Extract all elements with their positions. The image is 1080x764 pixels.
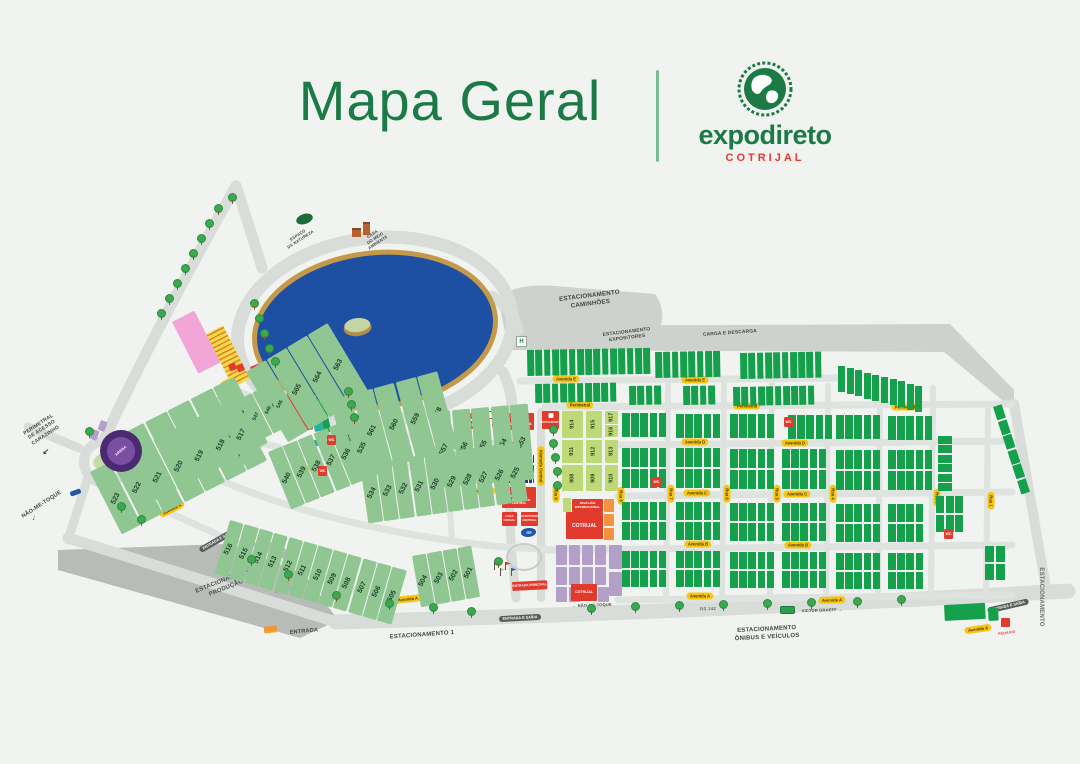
tree-icon: [549, 439, 558, 448]
stand-cell: [873, 504, 881, 522]
stand-cell: [713, 551, 721, 568]
stand-cell: [819, 449, 827, 468]
lot-number: 528: [462, 472, 474, 486]
stand-cell: [640, 570, 648, 587]
stand-cell: [916, 524, 924, 542]
tree-icon: [347, 400, 356, 409]
stand-cell: [925, 450, 933, 469]
map-label: RS 142: [700, 606, 716, 612]
stand-cell: [758, 414, 766, 438]
stand-cell: [758, 386, 765, 405]
stand-cell: [739, 503, 747, 521]
building-label: LOJA OFICIAL: [504, 515, 516, 522]
stand-cell: [758, 571, 766, 588]
map-feature-std: [944, 603, 986, 621]
stand-cell: [906, 450, 914, 469]
stand-cell: [750, 387, 757, 406]
building-label: AUDITÓRIO CENTRAL: [521, 515, 538, 522]
stand-cell: [897, 416, 905, 440]
lot-number: 913: [608, 447, 615, 456]
stand-cell: [864, 504, 872, 522]
building-auditório: AUDITÓRIO CENTRAL: [521, 512, 538, 526]
stand-cell: [631, 522, 639, 540]
lot-number: 563: [333, 357, 345, 371]
avenue-pill-perimetral: Perimetral: [566, 402, 593, 409]
lot-number: 537: [326, 453, 338, 467]
stand-cell: [845, 504, 853, 522]
stand-cell: [739, 470, 747, 489]
stand-cell: [938, 483, 952, 491]
stand-cell: [694, 570, 702, 587]
tree-icon: [429, 603, 438, 612]
stand-cell: [685, 522, 693, 540]
lot-913: 913: [605, 440, 618, 463]
flag-pole: [511, 568, 512, 576]
stand-cell: [640, 469, 648, 488]
stand-cell: [906, 416, 914, 440]
avenue-pill-avenida-a: Avenida A: [818, 596, 845, 604]
stand-cell: [916, 572, 924, 589]
lot-number: 527: [478, 470, 490, 484]
stand-cell: [676, 414, 684, 438]
stand-cell: [955, 515, 963, 532]
stand-cell: [791, 503, 799, 521]
environment-house-icon: [352, 228, 361, 237]
lot-number: 536: [341, 447, 353, 461]
map-label: ↙: [43, 447, 50, 457]
stand-cell: [758, 503, 766, 521]
stand-cell: [767, 449, 775, 468]
lot-number: 513: [268, 555, 280, 569]
stand-cell: [907, 384, 914, 410]
avenue-pill-rua-5: Rua 5: [774, 485, 781, 503]
stand-cell: [730, 470, 738, 489]
stand-cell: [676, 448, 684, 467]
stand-cell: [631, 570, 639, 587]
stand-cell: [650, 570, 658, 587]
lot-number: 546: [263, 405, 272, 415]
stand-cell: [610, 348, 617, 374]
map-feature-pur: [556, 567, 567, 585]
tree-icon: [553, 467, 562, 476]
stand-cell: [631, 448, 639, 467]
stand-cell: [888, 416, 896, 440]
stand-cell: [758, 470, 766, 489]
stand-cell: [640, 413, 648, 437]
map-feature-org: [604, 528, 614, 540]
stand-cell: [748, 523, 756, 541]
stand-cell: [655, 352, 662, 378]
stand-cell: [897, 471, 905, 490]
lot-number: 910: [608, 473, 615, 482]
map-feature-pur: [569, 545, 580, 565]
bus-icon: [780, 606, 795, 614]
tree-icon: [117, 502, 126, 511]
stand-cell: [845, 524, 853, 542]
stand-cell: [872, 375, 879, 401]
lot-number: 908: [569, 473, 576, 482]
stand-cell: [791, 571, 799, 588]
stand-cell: [888, 524, 896, 542]
stand-cell: [622, 448, 630, 467]
stand-cell: [713, 448, 721, 467]
stand-cell: [593, 383, 600, 402]
lot-911: 911: [562, 440, 583, 463]
stand-cell: [938, 464, 952, 472]
stand-cell: [704, 551, 712, 568]
stand-cell: [704, 570, 712, 587]
map-feature-std: [988, 607, 999, 621]
tree-icon: [807, 598, 816, 607]
stand-cell: [938, 474, 952, 482]
stand-cell: [898, 381, 905, 407]
stand-cell: [810, 523, 818, 541]
lot-number: 504: [418, 574, 430, 588]
lot-916: 916: [605, 425, 618, 437]
lot-number: 511: [297, 563, 308, 576]
stand-cell: [836, 524, 844, 542]
stand-cell: [825, 415, 833, 439]
stand-cell: [610, 383, 617, 402]
building-loja: LOJA OFICIAL: [502, 512, 517, 526]
stand-cell: [955, 496, 963, 513]
stand-cell: [767, 571, 775, 588]
tree-icon: [137, 515, 146, 524]
stand-cell: [543, 384, 550, 403]
stand-cell: [552, 384, 559, 403]
stand-cell: [631, 413, 639, 437]
lot-number: 559: [410, 412, 422, 426]
flag-pole: [500, 568, 501, 576]
stand-cell: [847, 368, 854, 394]
lot-number: 533: [382, 484, 394, 498]
stand-cell: [650, 502, 658, 520]
tree-icon: [719, 600, 728, 609]
stand-cell: [544, 350, 551, 376]
stand-cell: [906, 553, 914, 570]
stand-cell: [938, 436, 952, 444]
stand-cell: [640, 551, 648, 568]
map-feature-pur: [595, 545, 606, 565]
stand-cell: [739, 414, 747, 438]
stand-cell: [782, 503, 790, 521]
lot-number: 915: [591, 420, 598, 429]
stand-cell: [650, 413, 658, 437]
stand-cell: [766, 386, 773, 405]
stand-cell: [782, 449, 790, 468]
stand-cell: [740, 353, 747, 379]
stand-cell: [836, 572, 844, 589]
lot-number: 507: [357, 580, 369, 594]
stand-cell: [635, 348, 642, 374]
tree-icon: [189, 249, 198, 258]
stand-cell: [767, 470, 775, 489]
stand-cell: [873, 450, 881, 469]
wc-icon: WC: [652, 477, 661, 487]
stand-cell: [685, 469, 693, 488]
stand-cell: [810, 449, 818, 468]
lot-number: 516: [223, 542, 235, 556]
flag: [512, 568, 517, 571]
building-label: ENTRADA PRINCIPAL: [512, 583, 547, 589]
stand-cell: [897, 504, 905, 522]
lot-914: 914: [562, 411, 583, 438]
map-feature-pur: [598, 587, 609, 602]
tree-icon: [587, 604, 596, 613]
stand-cell: [800, 552, 808, 569]
stand-cell: [888, 450, 896, 469]
tree-icon: [549, 425, 558, 434]
stand-cell: [622, 469, 630, 488]
tree-icon: [181, 264, 190, 273]
stand-cell: [640, 448, 648, 467]
stand-cell: [854, 415, 862, 439]
stand-cell: [836, 415, 844, 439]
stand-cell: [838, 366, 845, 392]
stand-cell: [730, 414, 738, 438]
stand-cell: [791, 449, 799, 468]
tree-icon: [228, 193, 237, 202]
tree-icon: [197, 234, 206, 243]
lot-number: 912: [591, 447, 598, 456]
map-feature-pur: [556, 587, 567, 602]
tree-icon: [385, 599, 394, 608]
stand-cell: [897, 524, 905, 542]
tree-icon: [853, 597, 862, 606]
stand-cell: [996, 564, 1005, 580]
stand-cell: [730, 571, 738, 588]
stand-cell: [888, 471, 896, 490]
stand-cell: [855, 370, 862, 396]
stand-cell: [704, 448, 712, 467]
lot-number: 564: [312, 370, 324, 384]
stand-cell: [767, 414, 775, 438]
stand-cell: [864, 415, 872, 439]
stand-cell: [663, 352, 670, 378]
wc-icon: WC: [318, 466, 327, 476]
stand-cell: [888, 553, 896, 570]
stand-cell: [819, 552, 827, 569]
stand-cell: [916, 504, 924, 522]
stand-cell: [713, 570, 721, 587]
stand-cell: [694, 469, 702, 488]
stand-cell: [773, 352, 780, 378]
lot-number: 520: [173, 459, 185, 473]
tree-icon: [897, 595, 906, 604]
stand-cell: [758, 552, 766, 569]
stand-cell: [781, 352, 788, 378]
stand-cell: [757, 353, 764, 379]
stand-cell: [593, 349, 600, 375]
stand-cell: [629, 386, 636, 405]
stand-cell: [791, 386, 798, 405]
stand-cell: [767, 552, 775, 569]
map-feature-pur: [569, 567, 580, 585]
tree-icon: [214, 204, 223, 213]
stand-cell: [739, 449, 747, 468]
lot-number: 529: [446, 475, 458, 489]
tree-icon: [551, 453, 560, 462]
stand-cell: [800, 523, 808, 541]
stand-cell: [659, 522, 667, 540]
lot-912: 912: [586, 440, 602, 463]
stand-cell: [585, 349, 592, 375]
lot-number: 917: [608, 413, 615, 422]
tree-icon: [205, 219, 214, 228]
stand-cell: [791, 470, 799, 489]
stand-cell: [819, 571, 827, 588]
map-feature-pur: [582, 567, 593, 585]
stand-cell: [637, 386, 644, 405]
stand-cell: [782, 470, 790, 489]
stand-cell: [797, 415, 805, 439]
flag: [495, 562, 500, 565]
stand-cell: [730, 503, 738, 521]
stand-cell: [845, 572, 853, 589]
stand-cell: [704, 469, 712, 488]
stand-cell: [685, 570, 693, 587]
stand-cell: [676, 570, 684, 587]
stand-cell: [864, 553, 872, 570]
lot-number: 539: [296, 465, 308, 479]
stand-cell: [622, 502, 630, 520]
stand-cell: [906, 524, 914, 542]
stand-cell: [552, 349, 559, 375]
lot-number: 530: [430, 477, 442, 491]
stand-cell: [741, 387, 748, 406]
avenue-pill-avenida-d: Avenida D: [681, 439, 708, 446]
stand-cell: [650, 522, 658, 540]
stand-cell: [748, 571, 756, 588]
tree-icon: [247, 555, 256, 564]
stand-cell: [897, 572, 905, 589]
lot-915: 915: [586, 411, 602, 438]
stand-cell: [576, 383, 583, 402]
stand-cell: [800, 449, 808, 468]
stand-cell: [659, 551, 667, 568]
stand-cell: [705, 351, 712, 377]
stand-cell: [946, 496, 954, 513]
tree-icon: [157, 309, 166, 318]
avenue-pill-rua-1: Rua 1: [988, 492, 995, 510]
stand-cell: [730, 449, 738, 468]
lot-number: 540: [281, 471, 293, 485]
stand-cell: [631, 469, 639, 488]
lot-number: 545: [276, 399, 285, 409]
stand-cell: [622, 551, 630, 568]
stand-cell: [816, 415, 824, 439]
stand-cell: [854, 471, 862, 490]
stand-cell: [694, 551, 702, 568]
stand-cell: [873, 415, 881, 439]
stand-cell: [685, 448, 693, 467]
stand-cell: [685, 502, 693, 520]
stand-cell: [782, 523, 790, 541]
food-icon: [548, 413, 553, 418]
stand-cell: [881, 377, 888, 403]
lot-number: 560: [388, 417, 400, 431]
map-feature-pur: [609, 572, 622, 596]
stand-cell: [938, 455, 952, 463]
stand-cell: [654, 385, 661, 404]
stand-cell: [577, 349, 584, 375]
stand-cell: [713, 522, 721, 540]
stand-cell: [864, 572, 872, 589]
stand-cell: [873, 524, 881, 542]
flags-icon: [494, 562, 516, 580]
stand-cell: [748, 449, 756, 468]
stand-cell: [748, 552, 756, 569]
avenue-pill-rua-7: Rua 7: [668, 485, 675, 503]
stand-cell: [765, 352, 772, 378]
stand-cell: [906, 504, 914, 522]
stand-cell: [676, 522, 684, 540]
map-feature-org: [604, 514, 614, 526]
stand-cell: [748, 414, 756, 438]
stand-cell: [568, 383, 575, 402]
tree-icon: [250, 299, 259, 308]
lot-number: 534: [366, 486, 378, 500]
avenue-pill-avenida-d: Avenida D: [781, 440, 808, 447]
lot-number: 508: [342, 576, 354, 590]
lot-number: 525: [510, 466, 522, 480]
stand-cell: [685, 414, 693, 438]
stand-cell: [890, 379, 897, 405]
lot-number: 531: [414, 479, 426, 493]
stand-cell: [708, 385, 715, 404]
stand-cell: [730, 552, 738, 569]
stand-cell: [897, 553, 905, 570]
building-label: COTRIJAL: [572, 523, 597, 529]
stand-cell: [767, 503, 775, 521]
stand-cell: [748, 353, 755, 379]
stand-cell: [938, 445, 952, 453]
stand-cell: [864, 450, 872, 469]
stand-cell: [700, 386, 707, 405]
stand-cell: [774, 386, 781, 405]
stand-cell: [836, 553, 844, 570]
lot-number: 522: [131, 481, 143, 495]
lot-number: 519: [194, 449, 206, 463]
stand-cell: [748, 470, 756, 489]
stand-cell: [836, 450, 844, 469]
stand-cell: [864, 524, 872, 542]
map-feature-pur: [609, 545, 622, 569]
stand-cell: [640, 522, 648, 540]
stand-cell: [602, 349, 609, 375]
tree-icon: [271, 357, 280, 366]
stand-cell: [704, 502, 712, 520]
lot-number: 911: [569, 447, 576, 456]
stand-cell: [694, 448, 702, 467]
stand-cell: [758, 523, 766, 541]
lot-909: 909: [586, 465, 602, 491]
stand-cell: [739, 571, 747, 588]
stand-cell: [676, 551, 684, 568]
building-cotrijal: COTRIJAL: [566, 512, 603, 539]
avenue-pill-alameda-central: Alameda Central: [538, 446, 545, 486]
stand-cell: [810, 503, 818, 521]
stand-cell: [845, 471, 853, 490]
stand-cell: [713, 469, 721, 488]
stand-cell: [585, 383, 592, 402]
lot-908: 908: [562, 465, 583, 491]
avenue-pill-avenida-a: Avenida A: [686, 593, 713, 600]
stand-cell: [601, 383, 608, 402]
avenue-pill-avenida-b: Avenida B: [684, 541, 711, 548]
stand-cell: [650, 551, 658, 568]
stand-cell: [925, 416, 933, 440]
